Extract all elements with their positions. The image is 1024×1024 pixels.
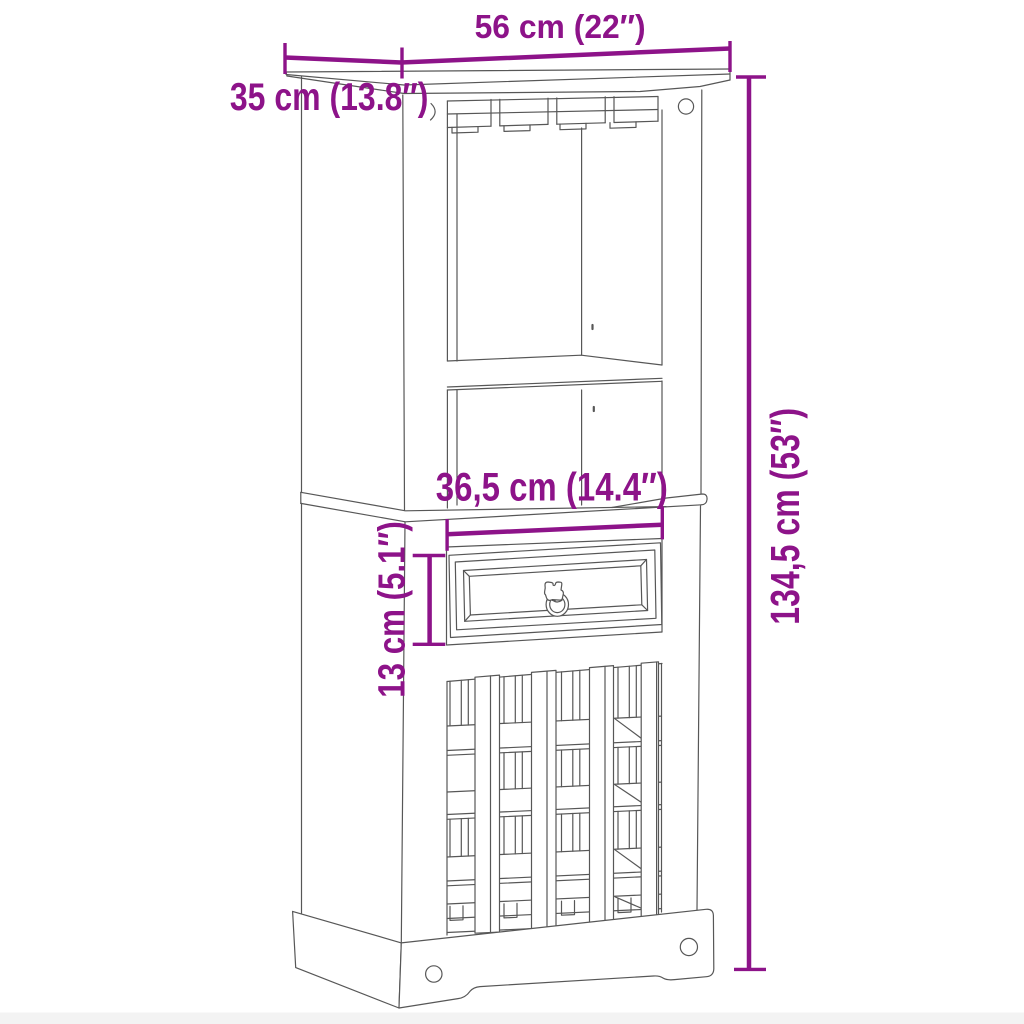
svg-text:56 cm (22″): 56 cm (22″): [475, 8, 646, 45]
svg-text:35 cm (13.8″): 35 cm (13.8″): [230, 76, 429, 119]
svg-text:36,5 cm (14.4″): 36,5 cm (14.4″): [436, 465, 668, 509]
svg-text:13 cm (5.1″): 13 cm (5.1″): [372, 521, 414, 698]
svg-text:134,5 cm (53″): 134,5 cm (53″): [762, 408, 808, 625]
